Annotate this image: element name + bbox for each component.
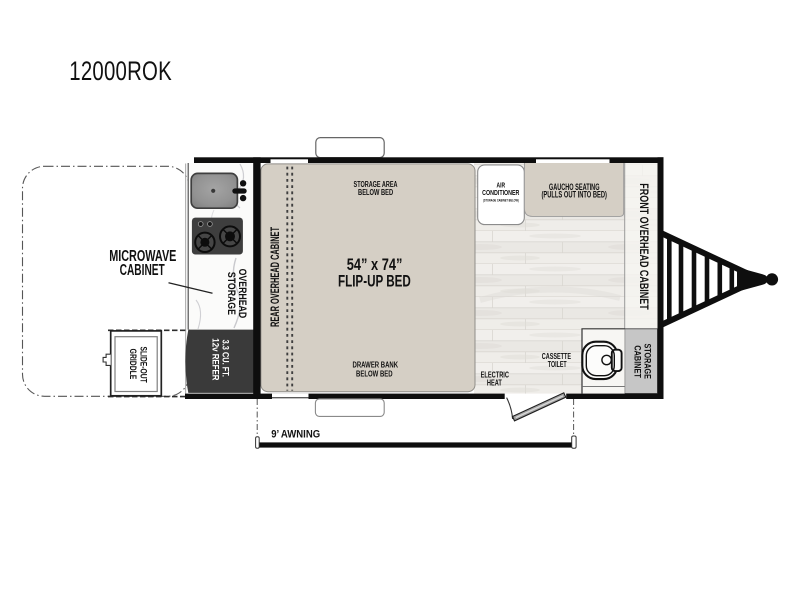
svg-text:12000ROK: 12000ROK bbox=[69, 56, 172, 86]
svg-text:BELOW BED: BELOW BED bbox=[358, 189, 393, 197]
svg-text:STORAGE AREA: STORAGE AREA bbox=[354, 181, 398, 189]
svg-text:HEAT: HEAT bbox=[487, 377, 502, 388]
svg-text:BELOW BED: BELOW BED bbox=[356, 370, 393, 379]
svg-text:12v REFER: 12v REFER bbox=[211, 338, 222, 380]
svg-text:STORAGE: STORAGE bbox=[225, 272, 237, 315]
svg-text:9’ AWNING: 9’ AWNING bbox=[271, 429, 320, 441]
svg-text:FRONT OVERHEAD CABINET: FRONT OVERHEAD CABINET bbox=[637, 183, 649, 310]
svg-text:GRIDDLE: GRIDDLE bbox=[128, 349, 138, 380]
svg-text:TOILET: TOILET bbox=[548, 360, 567, 370]
svg-text:DRAWER BANK: DRAWER BANK bbox=[353, 361, 399, 370]
svg-text:CABINET: CABINET bbox=[120, 261, 165, 279]
svg-text:SLIDE-OUT: SLIDE-OUT bbox=[138, 346, 148, 382]
svg-text:FLIP-UP BED: FLIP-UP BED bbox=[338, 272, 411, 291]
svg-text:CONDITIONER: CONDITIONER bbox=[482, 189, 520, 197]
svg-text:(STORAGE CABINET BELOW): (STORAGE CABINET BELOW) bbox=[483, 198, 519, 203]
svg-text:CABINET: CABINET bbox=[632, 345, 643, 378]
svg-text:(PULLS OUT INTO BED): (PULLS OUT INTO BED) bbox=[541, 189, 607, 200]
svg-text:REAR OVERHEAD CABINET: REAR OVERHEAD CABINET bbox=[270, 227, 283, 327]
